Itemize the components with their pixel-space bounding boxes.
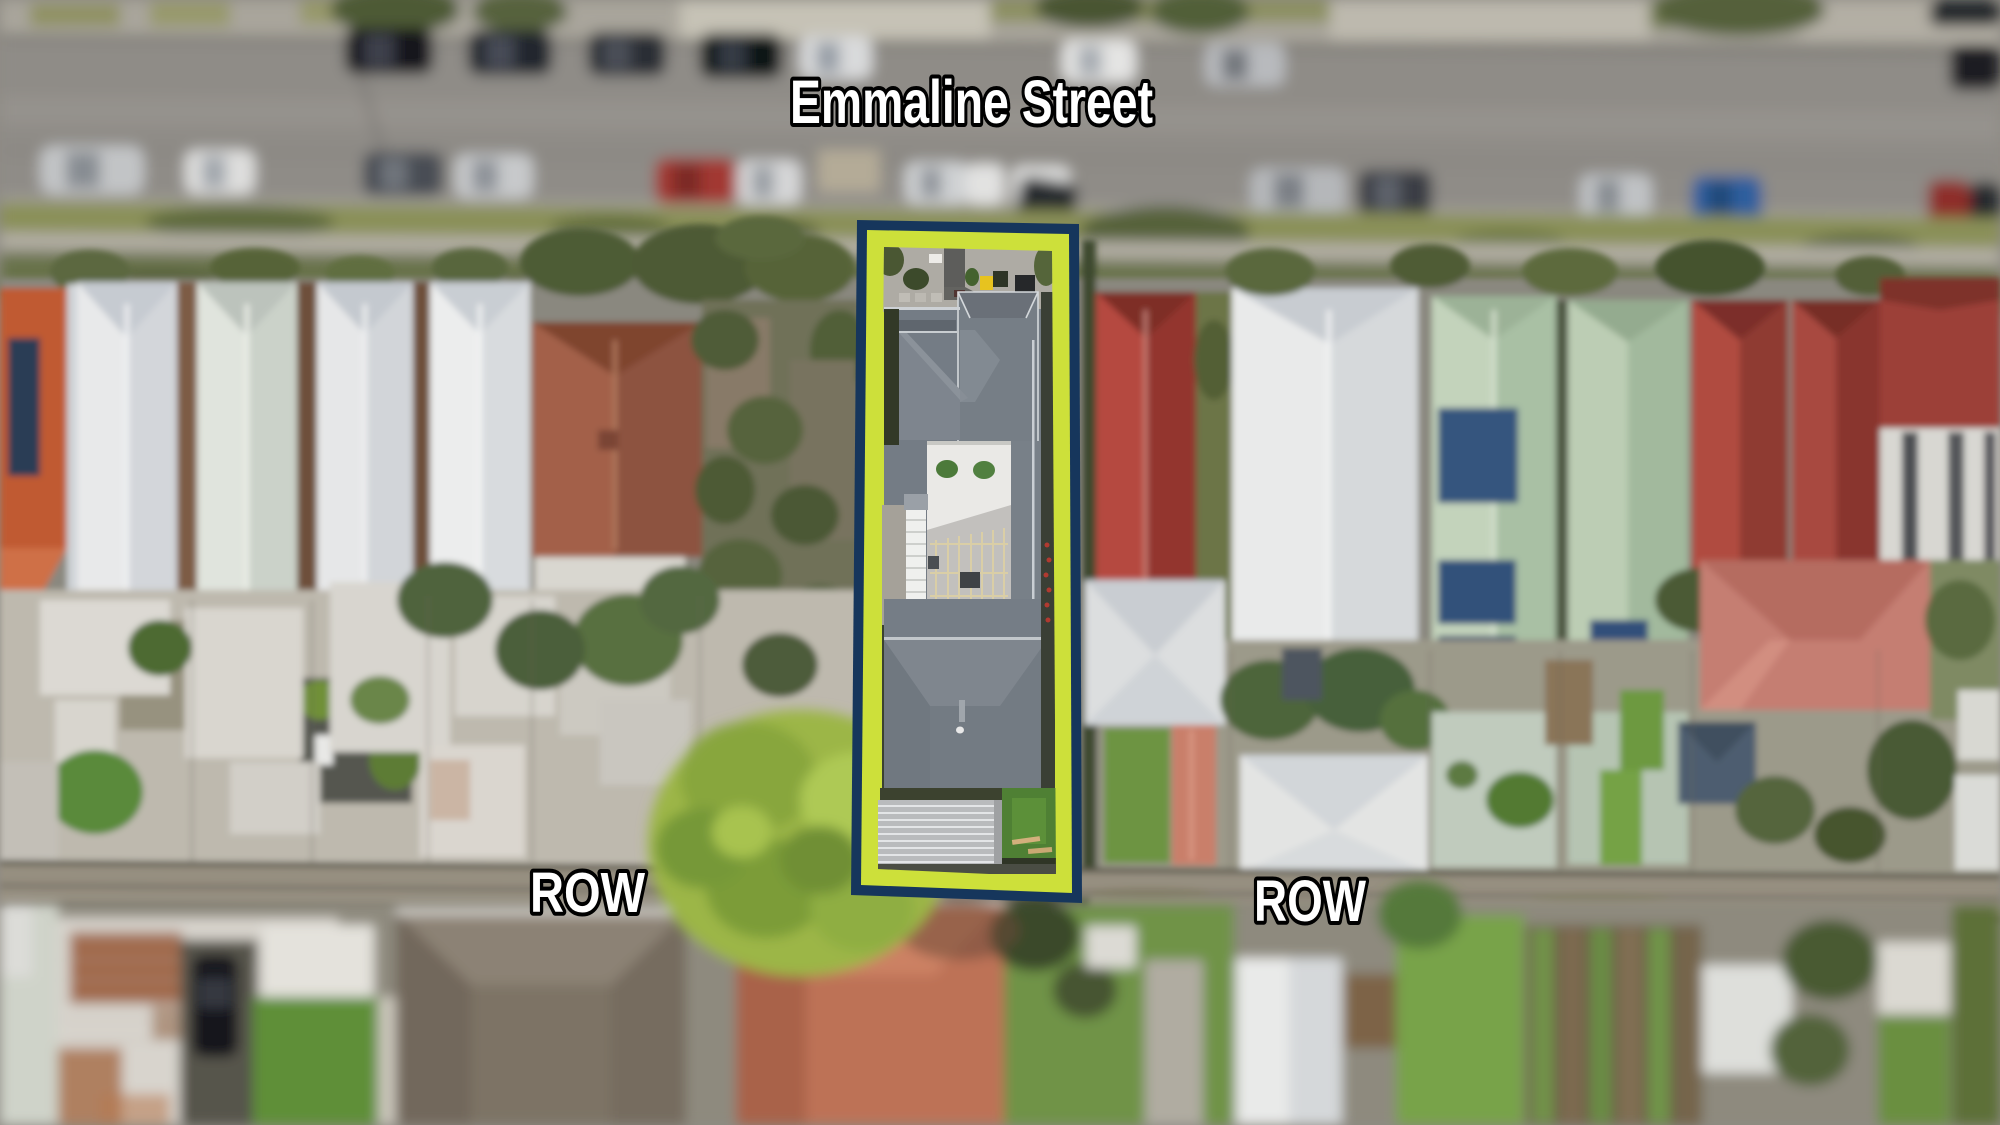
- svg-text:ROW: ROW: [530, 861, 645, 925]
- svg-text:ROW: ROW: [1254, 869, 1366, 934]
- svg-text:Emmaline Street: Emmaline Street: [790, 68, 1153, 136]
